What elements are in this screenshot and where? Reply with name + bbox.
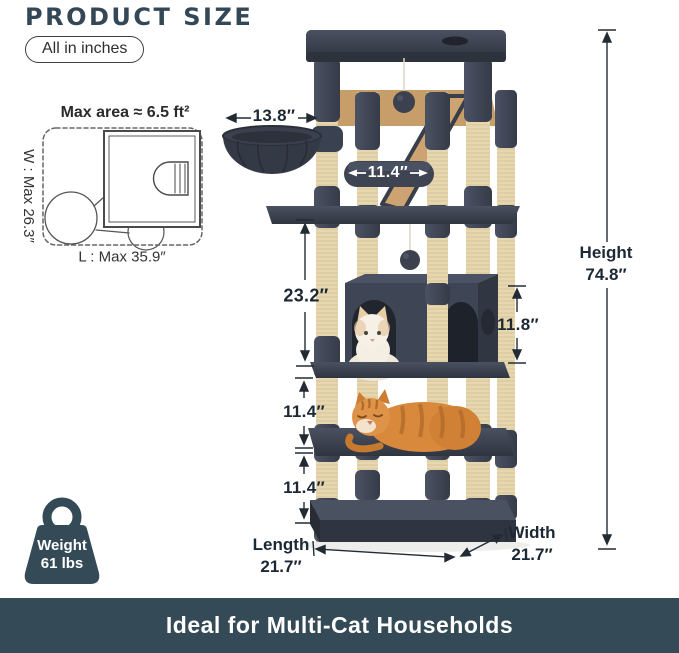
length-value: 21.7″ — [253, 556, 310, 578]
illustration-layer — [0, 0, 679, 653]
footprint-length-label: L : Max 35.9″ — [78, 249, 165, 266]
upper-height-label: 23.2″ — [283, 286, 328, 307]
footer-banner: Ideal for Multi-Cat Households — [0, 598, 679, 653]
length-label-block: Length 21.7″ — [253, 534, 310, 578]
condo-top-view — [154, 162, 188, 195]
page-title: PRODUCT SIZE — [25, 3, 253, 31]
pompom-toy-top — [393, 58, 415, 113]
unit-badge: All in inches — [25, 36, 144, 63]
width-label: Width — [508, 522, 555, 544]
height-value: 74.8″ — [580, 264, 633, 286]
height-label: Height — [580, 242, 633, 264]
weight-label: Weight — [37, 537, 87, 555]
top-board-hole — [442, 37, 468, 46]
top-perch-board — [306, 30, 506, 62]
width-label-block: Width 21.7″ — [508, 522, 555, 566]
perch-width-label: 11.4″ — [368, 164, 408, 182]
condo-height-label: 11.8″ — [497, 315, 539, 335]
middle-gap-label: 11.4″ — [283, 402, 325, 422]
bottom-gap-label: 11.4″ — [283, 478, 325, 498]
weight-value: 61 lbs — [37, 555, 87, 573]
height-label-block: Height 74.8″ — [580, 242, 633, 286]
footprint-circle — [45, 192, 97, 244]
weight-badge: Weight 61 lbs — [37, 537, 87, 573]
footprint-sketch — [43, 128, 202, 250]
footer-caption: Ideal for Multi-Cat Households — [166, 612, 513, 639]
width-value: 21.7″ — [508, 544, 555, 566]
middle-platform — [266, 206, 520, 224]
footprint-width-label: W : Max 26.3″ — [21, 136, 37, 256]
pompom-toy-middle — [400, 224, 420, 270]
length-label: Length — [253, 534, 310, 556]
condo-base-board — [310, 362, 510, 378]
base-platform — [310, 500, 516, 542]
max-area-label: Max area ≈ 6.5 ft² — [61, 104, 190, 122]
basket-width-label: 13.8″ — [253, 106, 296, 126]
condo-side-hole — [481, 309, 495, 335]
product-size-infographic: PRODUCT SIZE All in inches Max area ≈ 6.… — [0, 0, 679, 653]
height-arrow — [598, 30, 616, 549]
